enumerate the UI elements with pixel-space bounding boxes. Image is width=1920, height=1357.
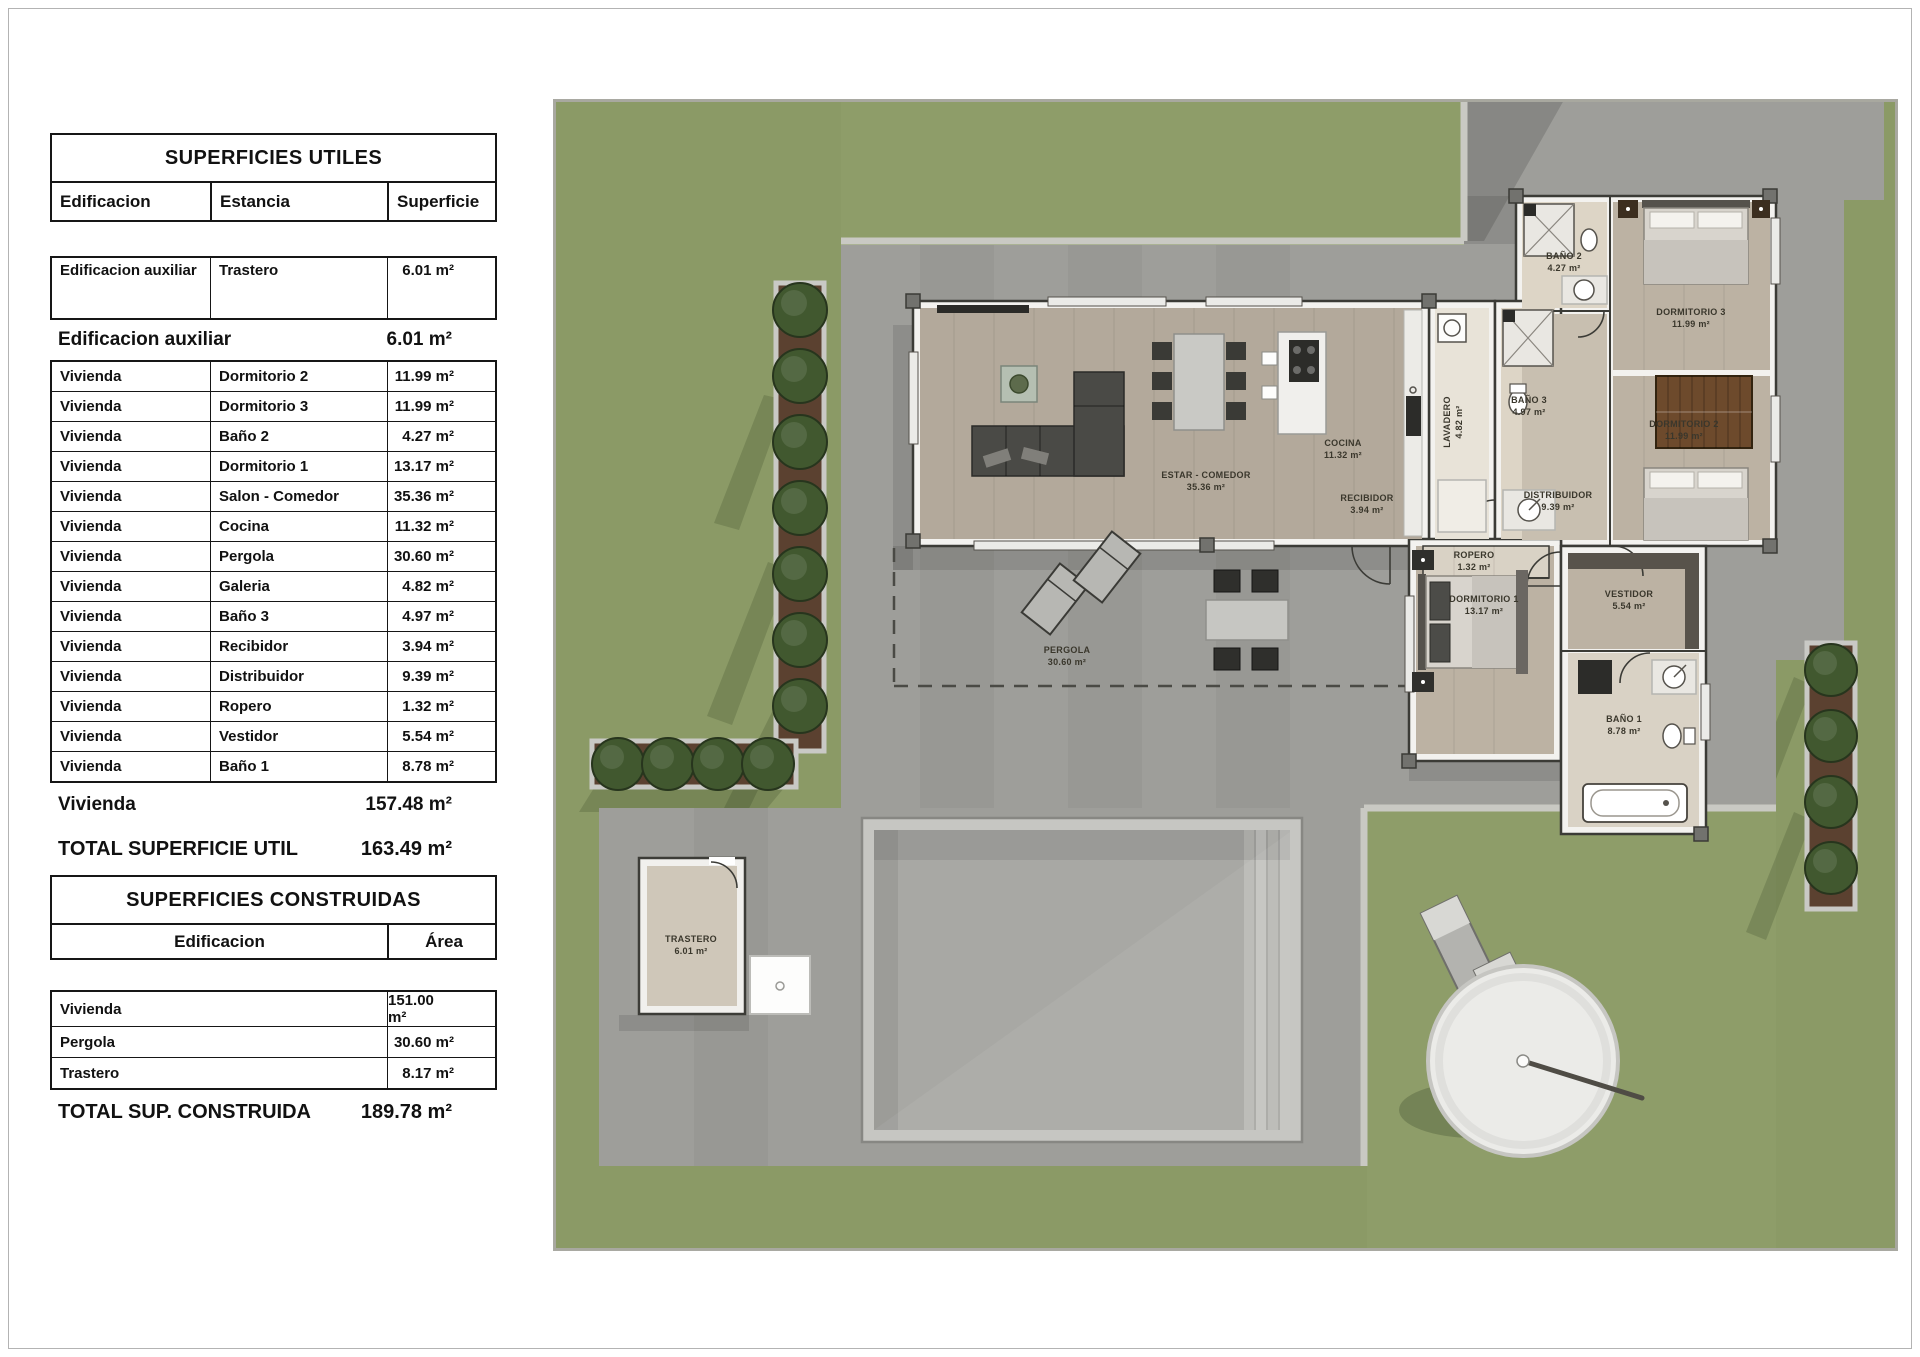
total-construida-row: TOTAL SUP. CONSTRUIDA 189.78 m² xyxy=(50,1090,497,1134)
cell-edificacion: Vivienda xyxy=(52,662,210,691)
cell-estancia: Pergola xyxy=(210,542,387,571)
column-header: Estancia xyxy=(210,183,387,220)
table-row: ViviendaGaleria4.82 m² xyxy=(52,571,495,601)
cell-estancia: Salon - Comedor xyxy=(210,482,387,511)
table-row: ViviendaVestidor5.54 m² xyxy=(52,721,495,751)
subtotal-vivienda-row: Vivienda 157.48 m² xyxy=(50,783,497,827)
cell-edificacion: Vivienda xyxy=(52,452,210,481)
cell-superficie: 11.99 m² xyxy=(387,392,499,421)
cell-superficie: 3.94 m² xyxy=(387,632,499,661)
site-plan: ESTAR - COMEDOR35.36 m²COCINA11.32 m²LAV… xyxy=(553,99,1898,1251)
cell-superficie: 6.01 m² xyxy=(387,258,499,318)
cell-edificacion: Vivienda xyxy=(52,542,210,571)
cell-edificacion: Vivienda xyxy=(52,722,210,751)
kitchen-sink xyxy=(1406,396,1421,436)
table-row: ViviendaCocina11.32 m² xyxy=(52,511,495,541)
table-row: ViviendaBaño 18.78 m² xyxy=(52,751,495,781)
table-superficies-construidas: SUPERFICIES CONSTRUIDAS Edificacion Área… xyxy=(50,875,497,1134)
cell-estancia: Vestidor xyxy=(210,722,387,751)
cell-superficie: 11.32 m² xyxy=(387,512,499,541)
cell-area: 30.60 m² xyxy=(387,1027,499,1057)
cell-area: 8.17 m² xyxy=(387,1058,499,1088)
table-row: ViviendaDormitorio 211.99 m² xyxy=(52,362,495,391)
table-row: ViviendaRopero1.32 m² xyxy=(52,691,495,721)
table-row: Edificacion auxiliar Trastero 6.01 m² xyxy=(52,258,495,318)
column-header: Área xyxy=(387,925,499,958)
table-row: ViviendaBaño 24.27 m² xyxy=(52,421,495,451)
cell-estancia: Recibidor xyxy=(210,632,387,661)
cell-estancia: Baño 1 xyxy=(210,752,387,781)
cell-estancia: Galeria xyxy=(210,572,387,601)
total-label: TOTAL SUP. CONSTRUIDA xyxy=(50,1101,311,1124)
cell-superficie: 4.97 m² xyxy=(387,602,499,631)
column-header: Superficie xyxy=(387,183,499,220)
cell-superficie: 4.82 m² xyxy=(387,572,499,601)
shower-dark xyxy=(1578,660,1612,694)
total-value: 163.49 m² xyxy=(361,838,497,861)
cell-edificacion: Vivienda xyxy=(52,752,210,781)
subtotal-value: 157.48 m² xyxy=(365,794,497,816)
cell-estancia: Cocina xyxy=(210,512,387,541)
swimming-pool xyxy=(862,818,1302,1142)
table-header-row: Edificacion Área xyxy=(50,925,497,960)
wardrobe xyxy=(1656,376,1752,448)
cell-superficie: 13.17 m² xyxy=(387,452,499,481)
table-header-row: Edificacion Estancia Superficie xyxy=(50,183,497,222)
cell-superficie: 9.39 m² xyxy=(387,662,499,691)
cell-edificacion: Vivienda xyxy=(52,692,210,721)
column-header: Edificacion xyxy=(52,183,210,220)
subtotal-label: Edificacion auxiliar xyxy=(50,329,231,351)
table-title: SUPERFICIES UTILES xyxy=(50,133,497,183)
cell-superficie: 11.99 m² xyxy=(387,362,499,391)
cell-estancia: Distribuidor xyxy=(210,662,387,691)
table-row: ViviendaSalon - Comedor35.36 m² xyxy=(52,481,495,511)
construidas-rows-box: Vivienda151.00 m²Pergola30.60 m²Trastero… xyxy=(50,990,497,1090)
cooktop xyxy=(1289,340,1319,382)
column-header: Edificacion xyxy=(52,925,387,958)
cell-edificacion: Vivienda xyxy=(52,482,210,511)
cell-edificacion: Pergola xyxy=(52,1027,387,1057)
dorm2-furniture xyxy=(1644,468,1748,540)
table-superficies-utiles: SUPERFICIES UTILES Edificacion Estancia … xyxy=(50,133,497,871)
cell-estancia: Trastero xyxy=(210,258,387,318)
table-row: Vivienda151.00 m² xyxy=(52,992,495,1026)
subtotal-value: 6.01 m² xyxy=(387,329,497,351)
cell-edificacion: Vivienda xyxy=(52,362,210,391)
cell-area: 151.00 m² xyxy=(387,992,499,1026)
cell-estancia: Dormitorio 1 xyxy=(210,452,387,481)
aux-row-box: Edificacion auxiliar Trastero 6.01 m² xyxy=(50,256,497,320)
cell-edificacion: Trastero xyxy=(52,1058,387,1088)
cell-estancia: Baño 3 xyxy=(210,602,387,631)
table-row: ViviendaPergola30.60 m² xyxy=(52,541,495,571)
table-row: ViviendaDistribuidor9.39 m² xyxy=(52,661,495,691)
cell-superficie: 8.78 m² xyxy=(387,752,499,781)
cell-edificacion: Vivienda xyxy=(52,392,210,421)
table-row: ViviendaDormitorio 311.99 m² xyxy=(52,391,495,421)
table-title: SUPERFICIES CONSTRUIDAS xyxy=(50,875,497,925)
cell-edificacion: Vivienda xyxy=(52,602,210,631)
cell-estancia: Dormitorio 2 xyxy=(210,362,387,391)
subtotal-aux-row: Edificacion auxiliar 6.01 m² xyxy=(50,320,497,360)
cell-edificacion: Vivienda xyxy=(52,992,387,1026)
total-label: TOTAL SUPERFICIE UTIL xyxy=(50,838,298,861)
cell-superficie: 30.60 m² xyxy=(387,542,499,571)
cell-superficie: 5.54 m² xyxy=(387,722,499,751)
table-row: Trastero8.17 m² xyxy=(52,1057,495,1088)
cell-edificacion: Edificacion auxiliar xyxy=(52,258,210,318)
table-row: ViviendaRecibidor3.94 m² xyxy=(52,631,495,661)
vivienda-rows-box: ViviendaDormitorio 211.99 m²ViviendaDorm… xyxy=(50,360,497,783)
cell-superficie: 35.36 m² xyxy=(387,482,499,511)
cell-estancia: Baño 2 xyxy=(210,422,387,451)
cell-estancia: Ropero xyxy=(210,692,387,721)
tv-cabinet xyxy=(937,305,1029,313)
table-row: ViviendaDormitorio 113.17 m² xyxy=(52,451,495,481)
table-row: ViviendaBaño 34.97 m² xyxy=(52,601,495,631)
dining-set xyxy=(1152,334,1246,430)
cell-edificacion: Vivienda xyxy=(52,422,210,451)
total-value: 189.78 m² xyxy=(361,1101,497,1124)
cell-superficie: 4.27 m² xyxy=(387,422,499,451)
total-util-row: TOTAL SUPERFICIE UTIL 163.49 m² xyxy=(50,827,497,871)
cell-edificacion: Vivienda xyxy=(52,512,210,541)
cell-edificacion: Vivienda xyxy=(52,572,210,601)
table-row: Pergola30.60 m² xyxy=(52,1026,495,1057)
cell-superficie: 1.32 m² xyxy=(387,692,499,721)
cell-estancia: Dormitorio 3 xyxy=(210,392,387,421)
cell-edificacion: Vivienda xyxy=(52,632,210,661)
subtotal-label: Vivienda xyxy=(50,794,136,816)
